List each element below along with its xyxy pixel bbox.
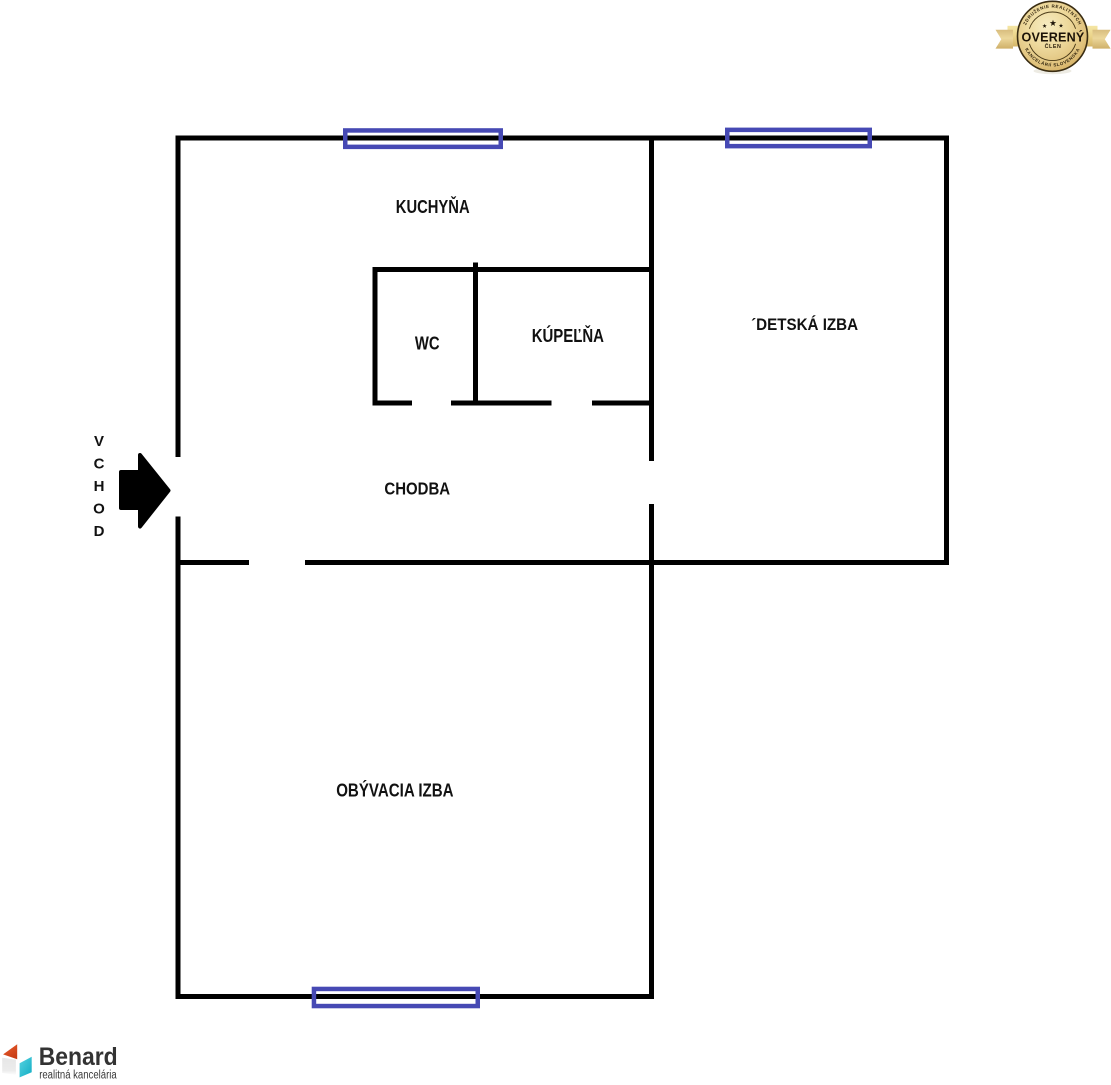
svg-text:realitná kancelária: realitná kancelária	[39, 1070, 117, 1080]
svg-text:Benard: Benard	[39, 1043, 118, 1071]
svg-text:KÚPEĽŇA: KÚPEĽŇA	[532, 325, 604, 346]
svg-text:ČLEN: ČLEN	[1045, 43, 1062, 50]
svg-text:´DETSKÁ IZBA: ´DETSKÁ IZBA	[751, 315, 858, 334]
svg-text:O: O	[93, 501, 105, 518]
svg-text:V: V	[94, 433, 104, 450]
svg-text:C: C	[94, 456, 105, 473]
svg-text:H: H	[94, 478, 105, 495]
svg-text:OVERENÝ: OVERENÝ	[1022, 29, 1085, 44]
svg-text:CHODBA: CHODBA	[384, 478, 450, 498]
svg-text:KUCHYŇA: KUCHYŇA	[396, 196, 470, 217]
svg-text:D: D	[94, 523, 105, 540]
svg-text:OBÝVACIA IZBA: OBÝVACIA IZBA	[336, 779, 453, 800]
svg-text:WC: WC	[415, 334, 440, 354]
